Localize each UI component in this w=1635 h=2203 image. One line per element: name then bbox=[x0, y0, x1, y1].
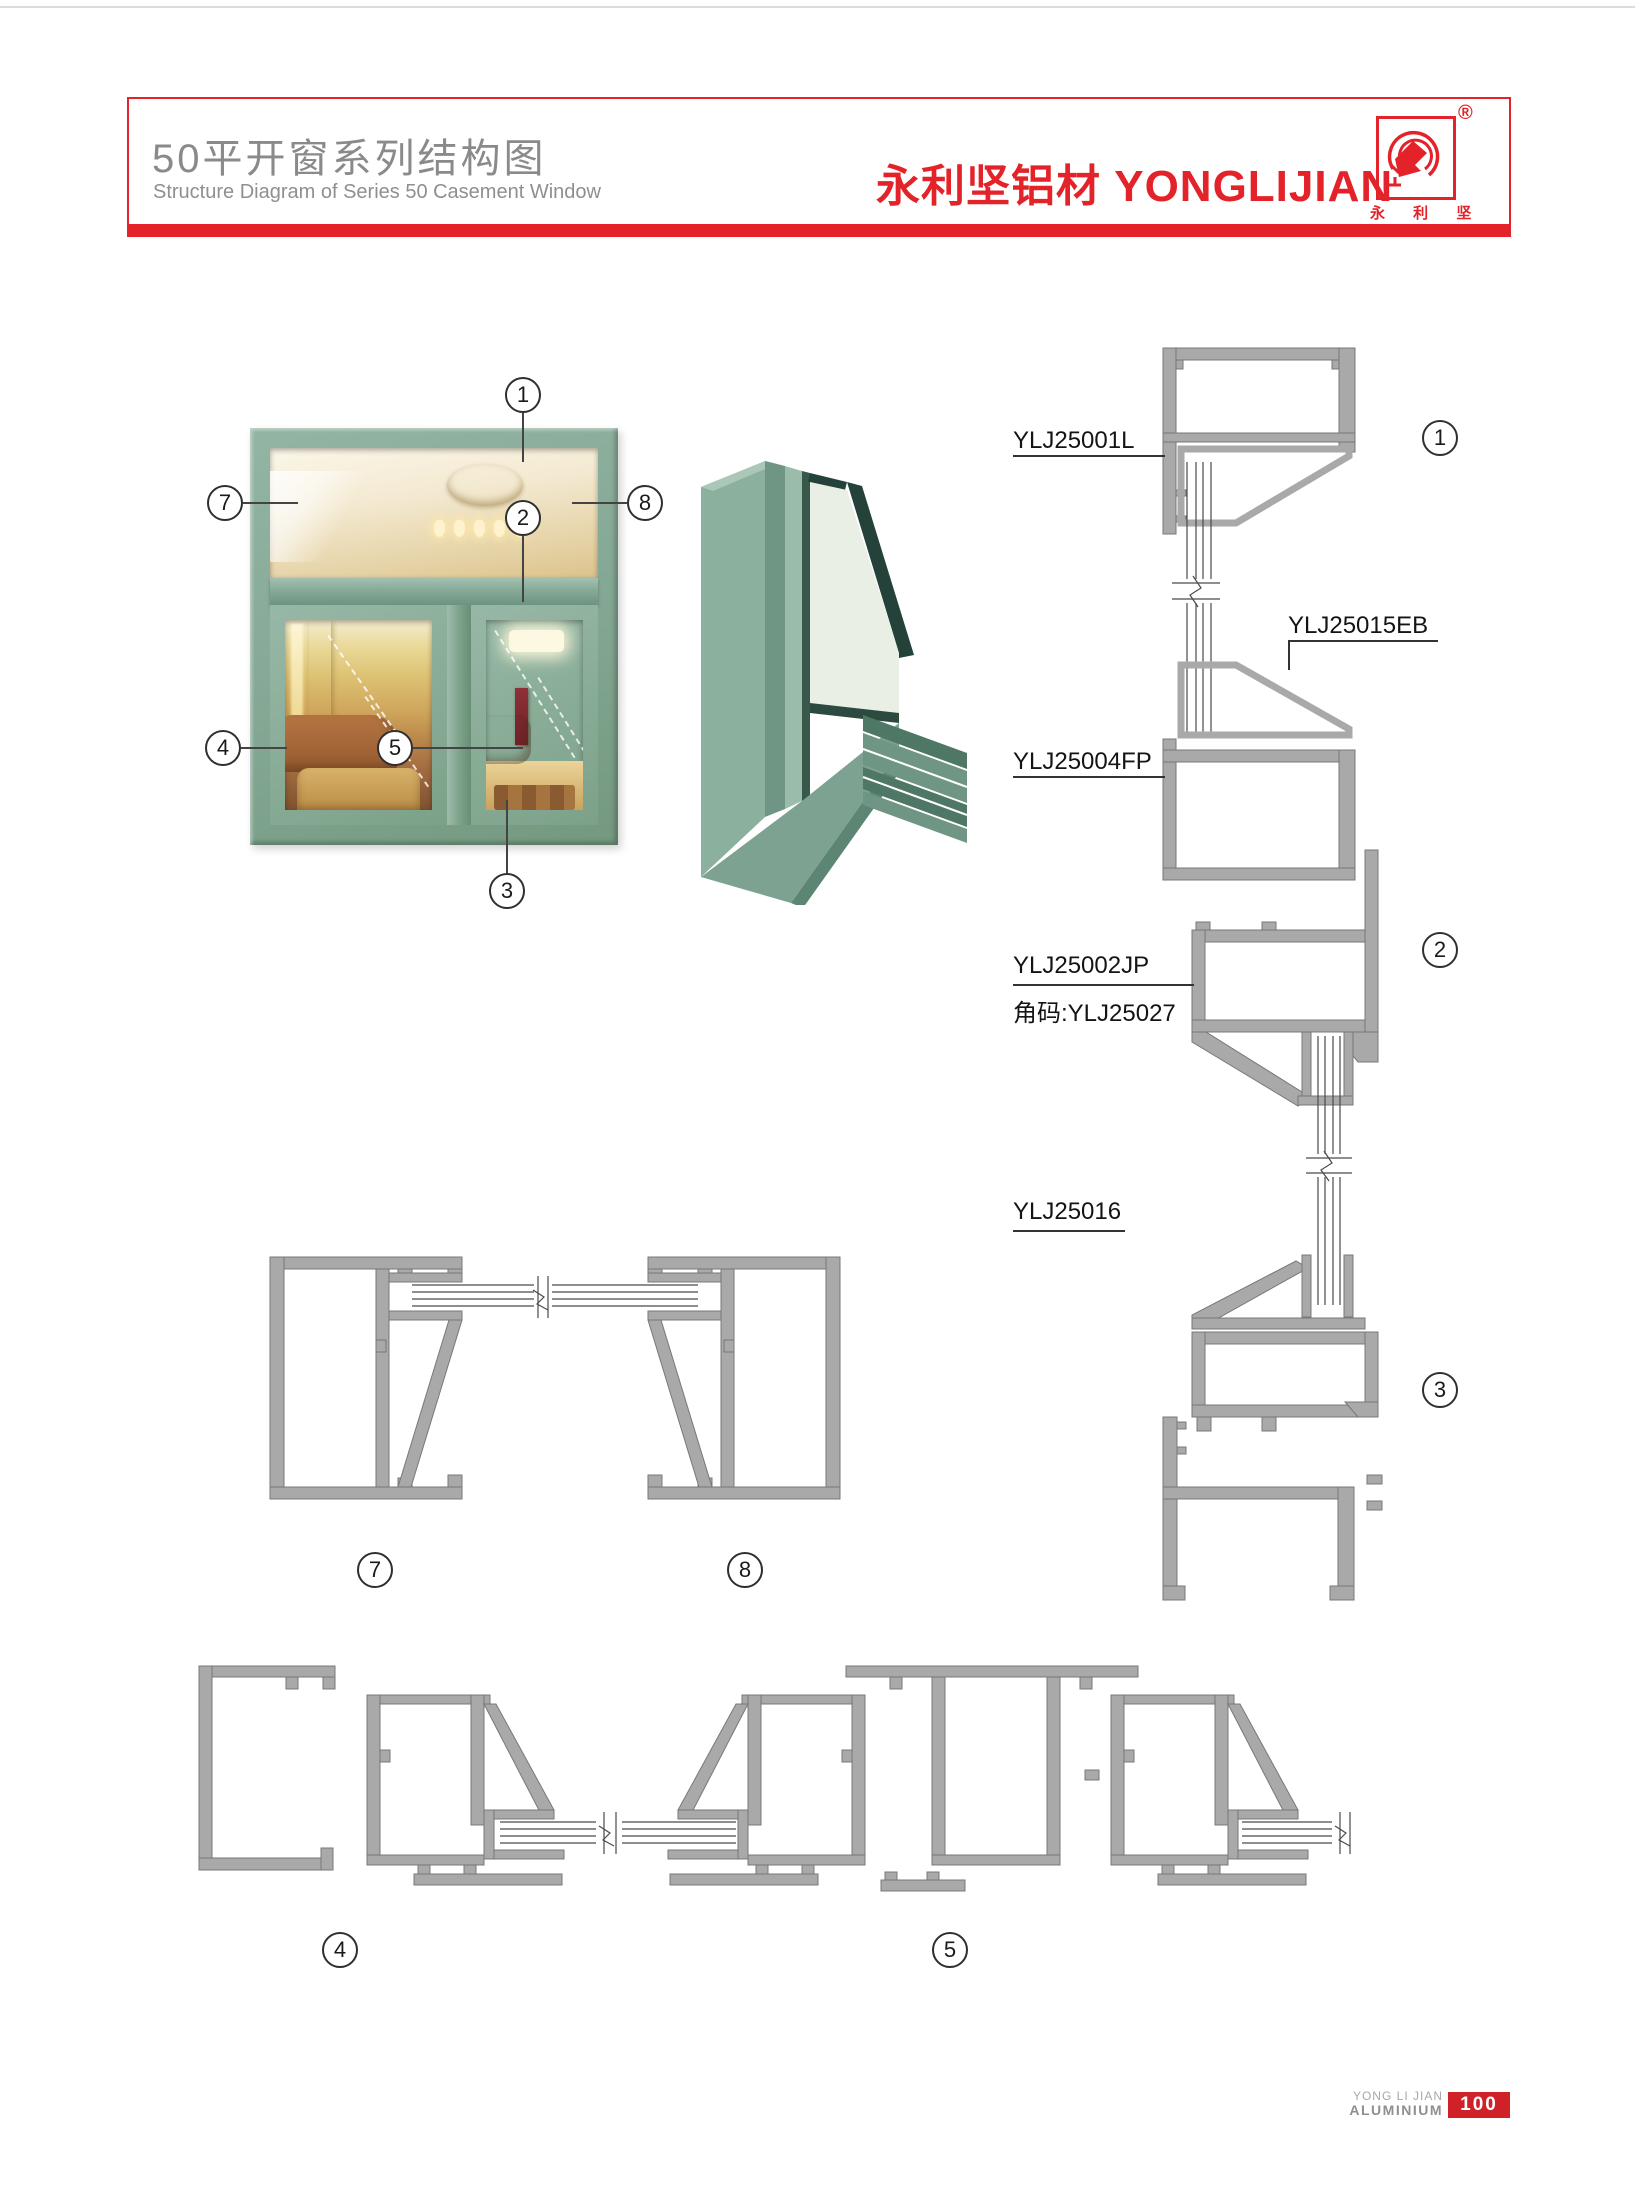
header-red-bar bbox=[127, 224, 1511, 237]
ottoman bbox=[297, 768, 420, 810]
section-circle-7: 7 bbox=[357, 1552, 393, 1588]
ceiling-light bbox=[509, 630, 563, 653]
label-YLJ25015EB: YLJ25015EB bbox=[1288, 612, 1428, 640]
callout-8: 8 bbox=[627, 485, 663, 521]
registered-mark: ® bbox=[1458, 102, 1473, 125]
page-title: 50平开窗系列结构图 bbox=[152, 126, 547, 184]
label-line-YLJ25002JP bbox=[1013, 984, 1194, 986]
label-line-YLJ25015EB bbox=[1288, 640, 1438, 642]
section-circle-4: 4 bbox=[322, 1932, 358, 1968]
ceiling-medallion bbox=[447, 464, 523, 506]
transom-divider bbox=[270, 578, 598, 605]
section-4-5-drawing bbox=[190, 1650, 1370, 1905]
callout-line-1 bbox=[522, 413, 524, 462]
label-YLJ25016: YLJ25016 bbox=[1013, 1198, 1121, 1226]
page-subtitle: Structure Diagram of Series 50 Casement … bbox=[153, 181, 601, 204]
window-photo bbox=[250, 428, 618, 845]
section-circle-8: 8 bbox=[727, 1552, 763, 1588]
section-circle-1: 1 bbox=[1422, 420, 1458, 456]
callout-line-4 bbox=[241, 747, 287, 749]
logo-characters: 永 利 坚 bbox=[1370, 202, 1462, 223]
mullion bbox=[447, 605, 471, 825]
brand-logo-mark bbox=[1376, 116, 1456, 200]
callout-3: 3 bbox=[489, 873, 525, 909]
sofa-right bbox=[486, 715, 531, 764]
callout-line-2 bbox=[522, 536, 524, 602]
callout-4: 4 bbox=[205, 730, 241, 766]
callout-2: 2 bbox=[505, 500, 541, 536]
right-casement-glass bbox=[486, 620, 583, 810]
label-YLJ25004FP: YLJ25004FP bbox=[1013, 748, 1152, 776]
label-line-YLJ25001L bbox=[1013, 455, 1165, 457]
transom-pane bbox=[270, 448, 598, 578]
label-leader-YLJ25015EB bbox=[1288, 640, 1290, 670]
section-circle-5: 5 bbox=[932, 1932, 968, 1968]
ceiling-molding bbox=[270, 471, 424, 562]
profile-3d-render bbox=[695, 425, 975, 905]
callout-7: 7 bbox=[207, 485, 243, 521]
callout-1: 1 bbox=[505, 377, 541, 413]
callout-line-3 bbox=[506, 800, 508, 873]
logo-swirl-icon bbox=[1379, 119, 1447, 191]
footer-brand: YONG LI JIAN ALUMINIUM bbox=[1243, 2090, 1443, 2119]
section-circle-2: 2 bbox=[1422, 932, 1458, 968]
label-YLJ25002JP: YLJ25002JP bbox=[1013, 952, 1149, 980]
brand-logotype: 永利坚铝材 YONGLIJIAN bbox=[876, 150, 1393, 214]
right-casement-sash bbox=[471, 605, 598, 825]
page-number-badge: 100 bbox=[1448, 2092, 1510, 2118]
section-7-8-drawing bbox=[250, 1240, 850, 1510]
label-YLJ25001L: YLJ25001L bbox=[1013, 427, 1134, 455]
callout-line-8 bbox=[572, 502, 627, 504]
callout-line-5 bbox=[413, 747, 523, 749]
left-casement-sash bbox=[270, 605, 447, 825]
page-top-rule bbox=[0, 6, 1635, 8]
label-line-YLJ25016 bbox=[1013, 1230, 1125, 1232]
callout-line-7 bbox=[243, 502, 298, 504]
section-circle-3: 3 bbox=[1422, 1372, 1458, 1408]
footer-brand-line2: ALUMINIUM bbox=[1243, 2103, 1443, 2118]
label-YLJ25027: 角码:YLJ25027 bbox=[1013, 993, 1176, 1028]
catalog-page: 50平开窗系列结构图 Structure Diagram of Series 5… bbox=[0, 0, 1635, 2203]
left-casement-glass bbox=[285, 620, 432, 810]
label-line-YLJ25004FP bbox=[1013, 776, 1165, 778]
callout-5: 5 bbox=[377, 730, 413, 766]
